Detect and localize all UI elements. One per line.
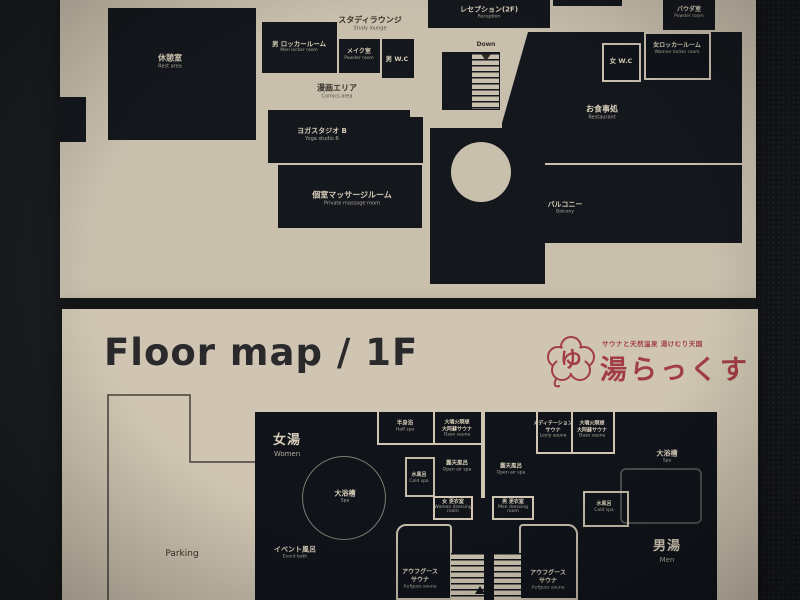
spa-men-outline (620, 468, 702, 524)
down-arrow-icon (481, 54, 491, 61)
stairs-1f-right (494, 553, 521, 600)
label-balcony: バルコニー (548, 201, 583, 210)
label-women-bath: 女湯 (273, 433, 301, 450)
label-women-wc: 女 W.C (610, 57, 633, 65)
room-top-strip (553, 0, 622, 6)
label-yoga: ヨガスタジオ B (297, 127, 347, 136)
label-comics: 漫画エリア (317, 84, 357, 94)
label-massage: 個室マッサージルーム (312, 191, 392, 201)
divider (433, 412, 435, 444)
label-makeup: メイク室 (344, 48, 374, 56)
divider (377, 412, 379, 444)
room-rest-area (108, 8, 256, 140)
divider (377, 443, 481, 445)
label-oaso-men: 大噴火瞑想 (577, 421, 607, 428)
photo-of-floor-map-signs: 休憩室Rest area スタディラウンジStudy lounge 男 ロッカー… (0, 0, 800, 600)
room-women-locker (644, 32, 711, 80)
label-restaurant: お食事処 (586, 105, 618, 115)
label-parking: Parking (165, 549, 198, 561)
divider (613, 412, 615, 452)
label-spa-men: 大浴槽 (657, 450, 678, 459)
center-divider (481, 412, 485, 498)
label-aufguss-left: アウフグース (402, 568, 438, 576)
label-down: Down (477, 41, 496, 49)
label-powder: パウダ室 (674, 6, 704, 14)
floor-map-board-2f: 休憩室Rest area スタディラウンジStudy lounge 男 ロッカー… (60, 0, 756, 298)
label-rest: 休憩室 (158, 54, 182, 64)
curved-notch (451, 142, 511, 202)
label-oaso-women: 大噴火瞑想 (442, 420, 472, 427)
label-men-wc: 男 W.C (386, 55, 409, 63)
label-reception: レセプション(2F) (460, 6, 518, 15)
label-men-bath: 男湯 (653, 539, 681, 556)
room-yoga-ext (410, 117, 423, 163)
room-left-edge (60, 97, 86, 142)
divider (536, 452, 615, 454)
label-study-lounge: スタディラウンジ (338, 16, 401, 26)
up-arrow-icon (475, 586, 485, 594)
label-event-bath: イベント風呂 (274, 546, 316, 555)
floor-map-board-1f: Floor map / 1F ゆ サウナと天然温泉 湯けむり天国 湯らっくす P… (62, 309, 758, 600)
stairwell-solid-2f (442, 52, 471, 110)
label-women-locker: 女ロッカールーム (653, 42, 701, 50)
label-aufguss-right: アウフグース (530, 569, 566, 577)
label-meditation: メディテーション (533, 421, 573, 428)
label-spa-women: 大浴槽 (335, 490, 356, 499)
background-carpet-strip (756, 0, 800, 600)
